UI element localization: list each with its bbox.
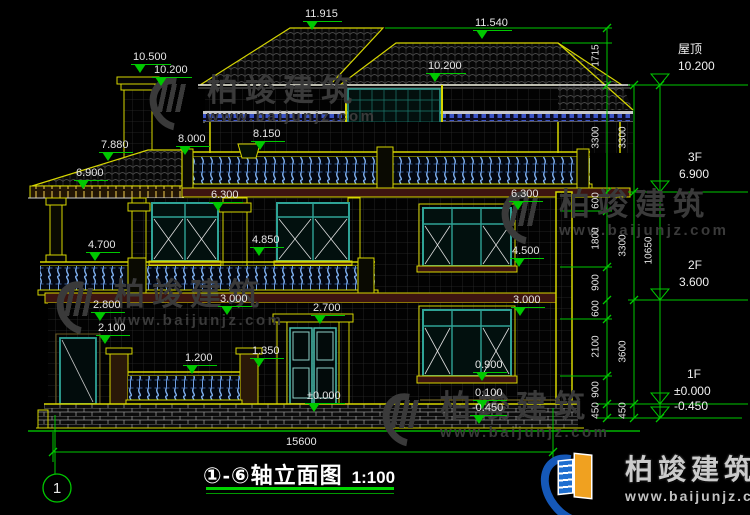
- elev-balcony3-post: 8.150: [251, 128, 285, 142]
- title-scale: 1:100: [352, 468, 395, 487]
- elev-pier-cap: 1.350: [250, 345, 284, 359]
- window-2f-left: [149, 203, 221, 265]
- title-underline-thick: [206, 487, 394, 490]
- cad-elevation-drawing: 柏竣建筑 www.baijunjz.com 柏竣建筑 www.baijunjz.…: [0, 0, 750, 515]
- elev-chimney-top: 10.500: [131, 51, 171, 65]
- watermark-url: www.baijunjz.com: [440, 424, 609, 441]
- elev-porch-eave: 6.900: [74, 167, 108, 181]
- dim-1800: 1800: [591, 217, 602, 261]
- level-2f-elev: 3.600: [679, 275, 709, 289]
- elev-porch-roof-peak: 7.880: [99, 139, 133, 153]
- dim-3300b: 3300: [618, 116, 629, 160]
- watermark-top: 柏竣建筑 www.baijunjz.com: [145, 74, 376, 126]
- dim-3600: 3600: [618, 330, 629, 374]
- elev-door-head: 2.700: [311, 302, 345, 316]
- elev-win1-head-center: 3.000: [218, 293, 252, 307]
- elev-balcony3-rail: 8.000: [176, 133, 210, 147]
- elev-win2-head-right: 6.300: [509, 188, 543, 202]
- overall-width-dim: 15600: [286, 436, 317, 448]
- elev-win2-sill-center: 4.850: [250, 234, 284, 248]
- drawing-title: ①-⑥轴立面图1:100: [203, 458, 395, 490]
- brand-logo-url: www.baijunjz.com: [625, 488, 750, 504]
- watermark-brand: 柏竣建筑: [440, 392, 609, 422]
- dim-2100: 2100: [591, 325, 602, 369]
- elev-win1-head-right: 3.000: [511, 294, 545, 308]
- watermark-brand: 柏竣建筑: [207, 76, 376, 106]
- dim-450a: 450: [591, 389, 602, 433]
- watermark-url: www.baijunjz.com: [114, 312, 283, 329]
- elev-rail1-mid: 2.100: [96, 322, 130, 336]
- level-roof-name: 屋顶: [678, 40, 702, 57]
- level-1f-name: 1F: [687, 367, 701, 381]
- brand-logo-icon: [533, 447, 613, 511]
- dim-10650: 10650: [644, 229, 655, 273]
- watermark-url: www.baijunjz.com: [207, 108, 376, 125]
- brand-logo: 柏竣建筑 www.baijunjz.com: [533, 447, 750, 511]
- dim-3300c: 3300: [618, 224, 629, 268]
- window-2f-center: [274, 203, 352, 265]
- dim-450b: 450: [618, 389, 629, 433]
- elev-rail2-top: 4.700: [86, 239, 120, 253]
- grid-bubble-1: 1: [44, 480, 70, 497]
- veranda-2f: [46, 198, 66, 262]
- watermark-logo-icon: [378, 390, 430, 442]
- elev-ground-right: -0.450: [470, 402, 507, 416]
- level-roof-elev: 10.200: [678, 59, 715, 73]
- title-axis-range: ①-⑥: [203, 463, 251, 488]
- level-1f-elev: ±0.000: [674, 384, 711, 398]
- brand-logo-name: 柏竣建筑: [625, 455, 750, 485]
- elev-terrace: 0.100: [473, 387, 507, 401]
- elev-door-threshold: ±0.000: [305, 390, 345, 404]
- watermark-logo-icon: [145, 74, 197, 126]
- level-3f-name: 3F: [688, 150, 702, 164]
- level-2f-name: 2F: [688, 258, 702, 272]
- elev-win1-sill-right: 0.900: [473, 359, 507, 373]
- elev-rail1-top: 2.800: [91, 299, 125, 313]
- dim-1715: 1715: [591, 34, 602, 78]
- title-underline-thin: [206, 493, 394, 494]
- elev-porch-rail: 1.200: [183, 352, 217, 366]
- door-1f-left: [56, 334, 100, 404]
- elev-main-eave: 10.200: [426, 60, 466, 74]
- elev-ridge-left: 11.915: [303, 8, 342, 22]
- elev-win2-sill-right: 4.500: [510, 245, 544, 259]
- title-name: 轴立面图: [251, 463, 343, 488]
- elev-ridge-right: 11.540: [473, 17, 512, 31]
- level-3f-elev: 6.900: [679, 167, 709, 181]
- dim-3300a: 3300: [591, 116, 602, 160]
- watermark-brand: 柏竣建筑: [114, 280, 283, 310]
- watermark-brand: 柏竣建筑: [559, 190, 728, 220]
- elev-win2-head-left: 6.300: [209, 189, 243, 203]
- elev-chimney-cap: 10.200: [152, 64, 192, 78]
- level-ground-elev: -0.450: [674, 399, 708, 413]
